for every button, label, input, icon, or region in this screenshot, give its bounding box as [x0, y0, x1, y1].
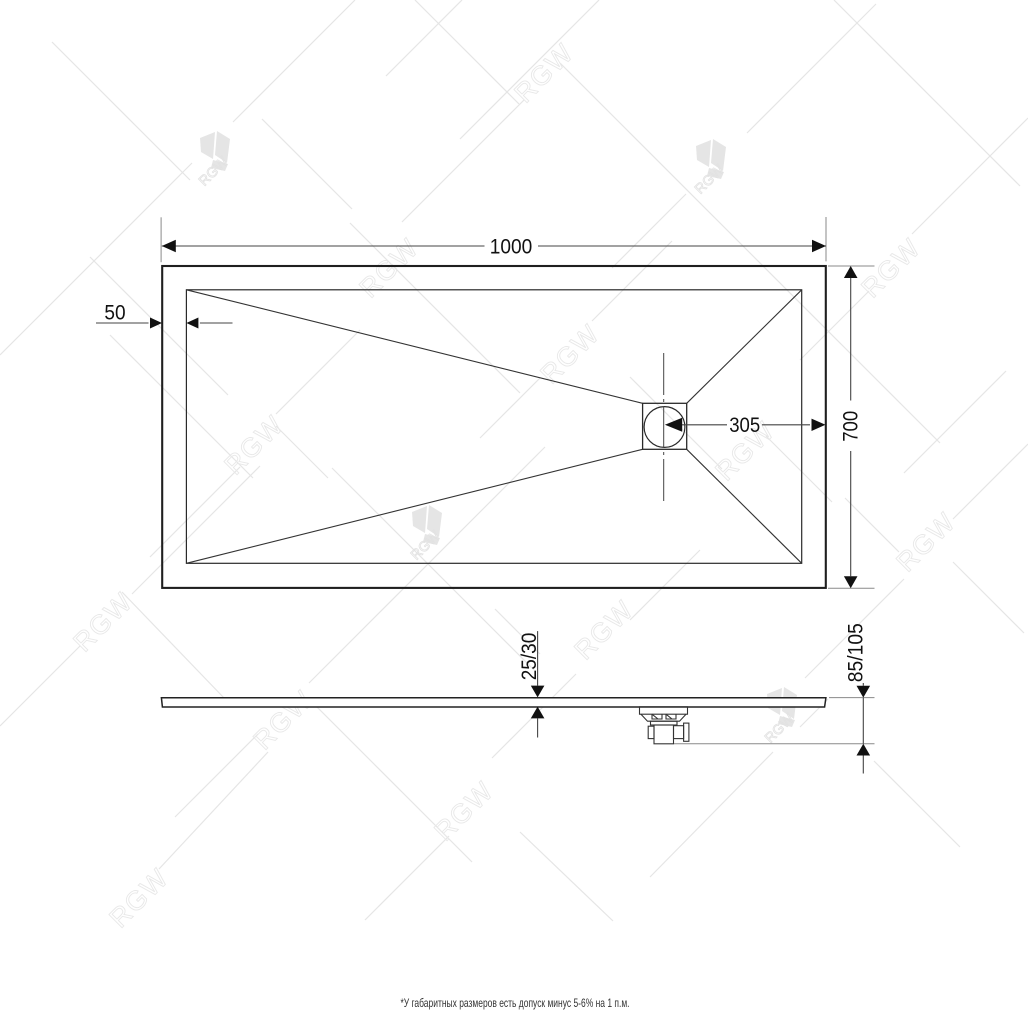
svg-text:85/105: 85/105 [843, 623, 867, 682]
svg-text:50: 50 [104, 301, 125, 325]
svg-text:*У габаритных размеров есть до: *У габаритных размеров есть допуск минус… [401, 996, 630, 1010]
svg-text:700: 700 [838, 411, 862, 442]
svg-text:25/30: 25/30 [517, 633, 541, 681]
svg-text:305: 305 [729, 413, 760, 437]
svg-text:1000: 1000 [490, 235, 533, 259]
